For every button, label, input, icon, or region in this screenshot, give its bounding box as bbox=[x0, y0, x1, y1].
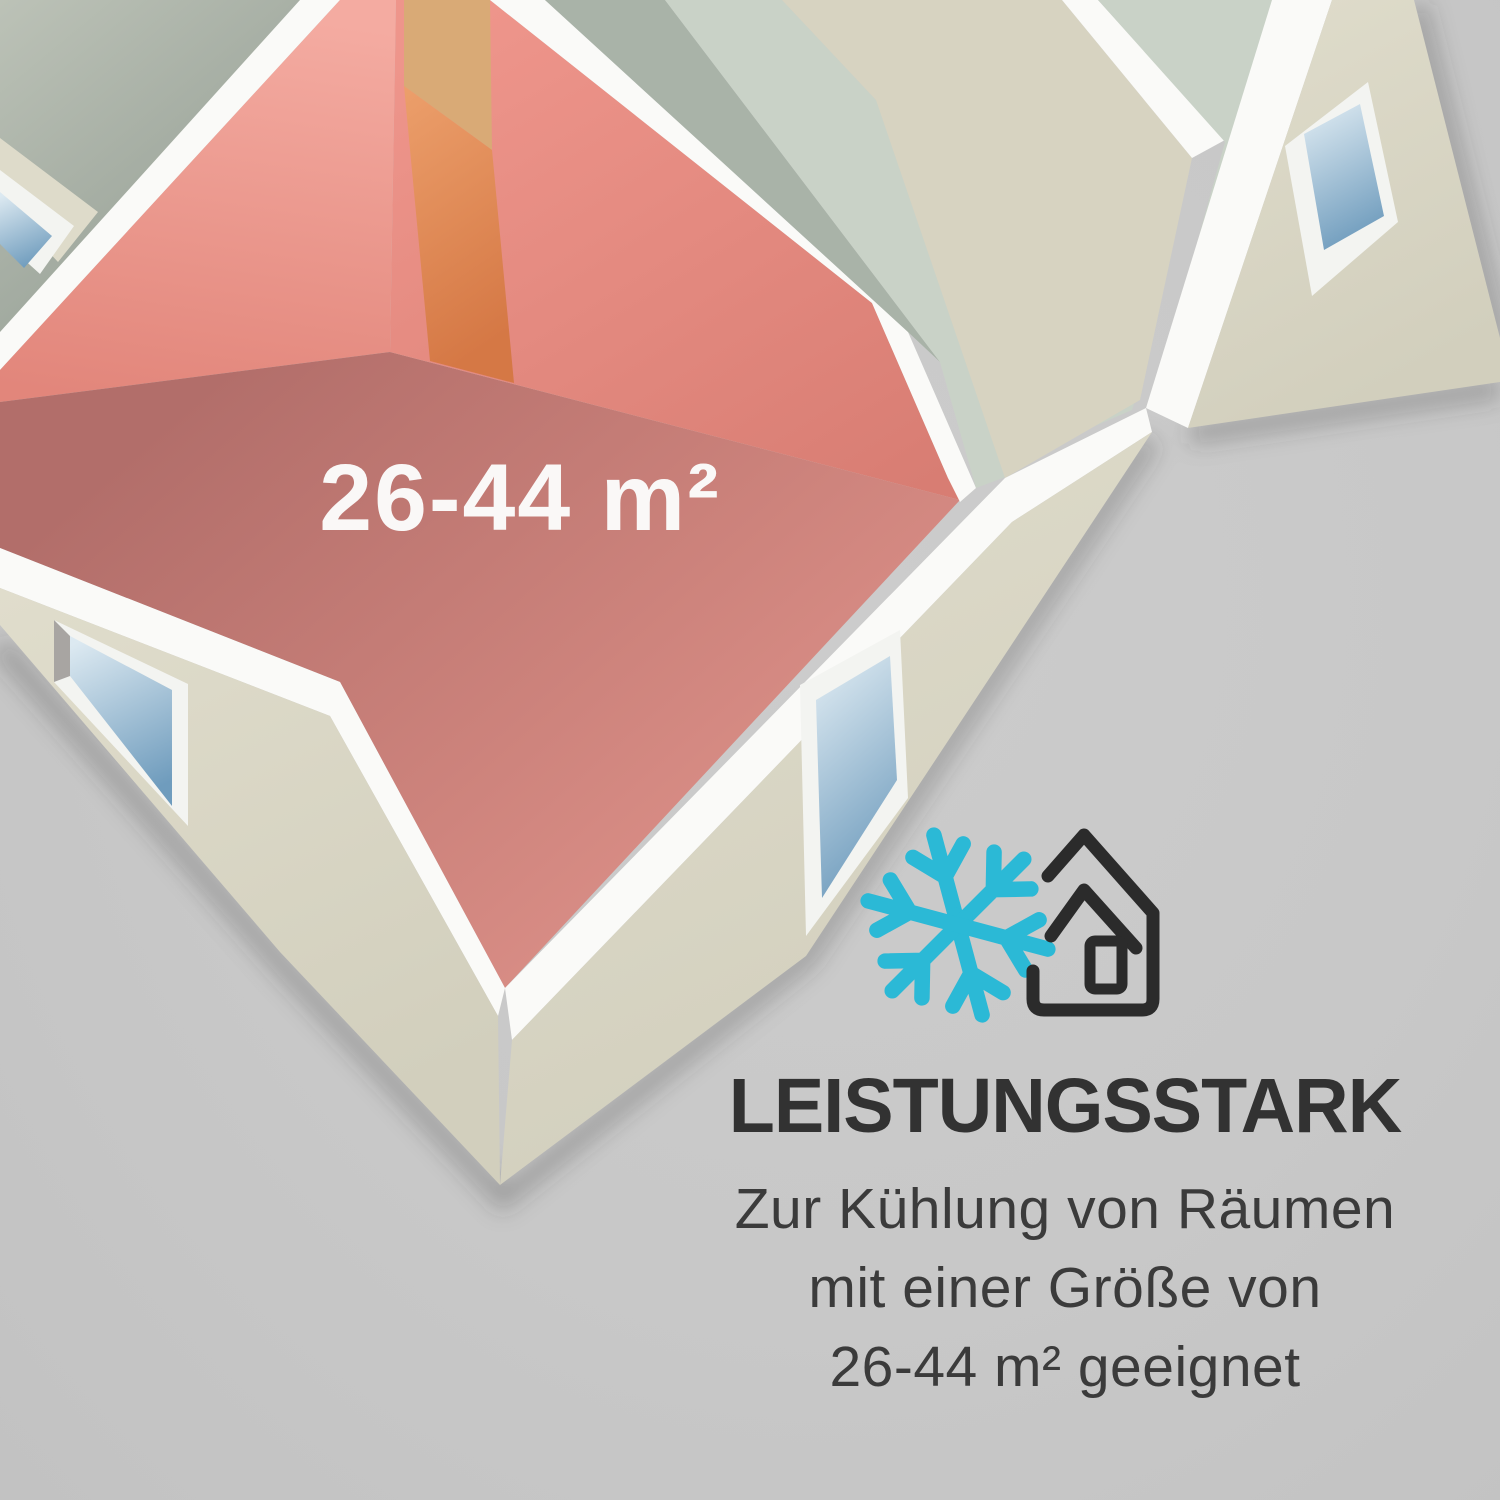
section-body: Zur Kühlung von Räumen mit einer Größe v… bbox=[560, 1170, 1500, 1407]
product-infographic: 26-44 m² LEISTUNGSSTARK Zur Kühlung von … bbox=[0, 0, 1500, 1500]
room-area-label: 26-44 m² bbox=[260, 444, 780, 553]
body-line-1: Zur Kühlung von Räumen bbox=[560, 1170, 1500, 1249]
section-heading: LEISTUNGSSTARK bbox=[609, 1062, 1500, 1151]
house-icon bbox=[1033, 835, 1153, 1010]
body-line-2: mit einer Größe von bbox=[560, 1249, 1500, 1328]
info-icons bbox=[845, 818, 1175, 1028]
body-line-3: 26-44 m² geeignet bbox=[560, 1328, 1500, 1407]
house-door bbox=[1090, 941, 1122, 989]
